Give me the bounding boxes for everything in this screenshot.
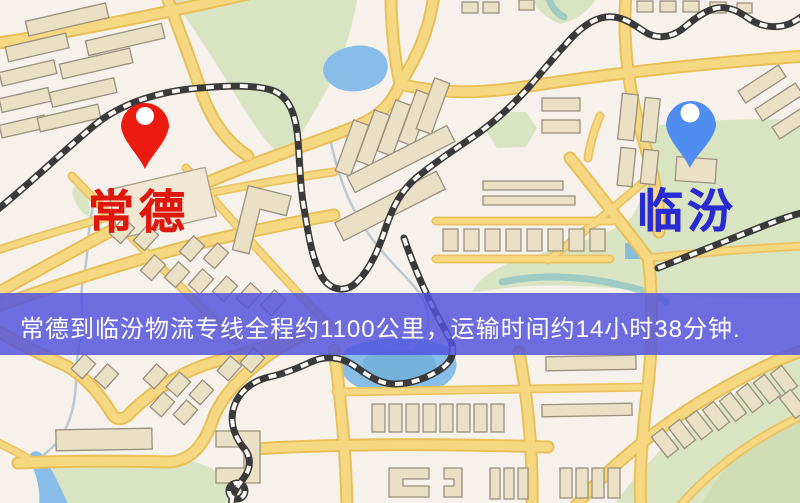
origin-place-label: 常德 bbox=[88, 176, 190, 242]
route-info-banner: 常德到临汾物流专线全程约1100公里，运输时间约14小时38分钟. bbox=[0, 293, 800, 355]
destination-place-label: 临汾 bbox=[637, 175, 737, 241]
route-info-text: 常德到临汾物流专线全程约1100公里，运输时间约14小时38分钟. bbox=[20, 309, 741, 344]
map-screenshot: 常德 临汾 常德到临汾物流专线全程约1100公里，运输时间约14小时38分钟. bbox=[0, 0, 800, 503]
map-canvas bbox=[0, 0, 800, 503]
